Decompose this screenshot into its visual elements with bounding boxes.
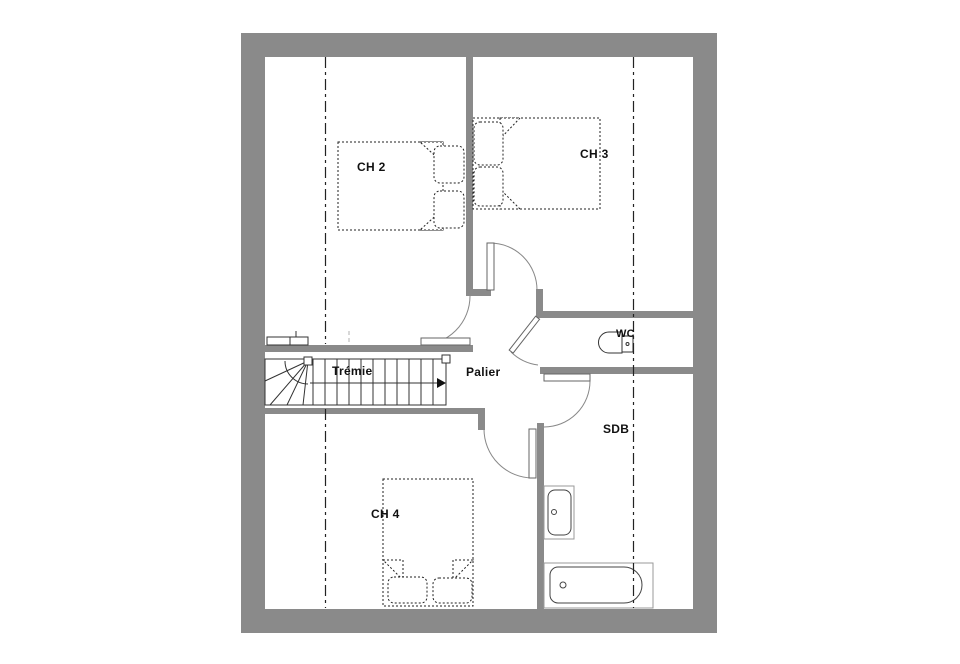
room-label-palier: Palier <box>466 365 501 379</box>
pillow <box>433 578 472 603</box>
door-leaf <box>544 374 590 381</box>
room-label-tremie: Trémie <box>332 364 373 378</box>
door-wc <box>509 316 539 365</box>
pillow <box>474 122 503 165</box>
door-sdb <box>544 374 590 427</box>
newel-start <box>304 357 312 365</box>
door-swing-arc <box>490 243 537 290</box>
door-leaf <box>421 338 470 345</box>
room-label-ch3: CH 3 <box>580 147 609 161</box>
room-label-wc: WC <box>616 328 635 340</box>
door-leaf <box>529 429 536 478</box>
door-swing-arc <box>544 381 590 427</box>
door-leaf <box>487 243 494 290</box>
newel-end <box>442 355 450 363</box>
door-ch3 <box>487 243 537 290</box>
upper-flight-strip <box>267 337 308 345</box>
pillow <box>434 191 464 228</box>
pillow <box>434 146 464 183</box>
room-label-sdb: SDB <box>603 422 629 436</box>
room-label-ch4: CH 4 <box>371 507 400 521</box>
room-label-ch2: CH 2 <box>357 160 386 174</box>
door-swing-arc <box>484 429 533 478</box>
pillow <box>388 577 427 603</box>
door-swing-arc <box>511 352 538 365</box>
floor-plan: CH 2 CH 3 CH 4 Trémie Palier WC SDB <box>0 0 960 664</box>
bathtub-icon <box>544 563 653 608</box>
pillow <box>474 167 503 206</box>
bed-ch4 <box>383 479 473 606</box>
sheet-fold <box>453 560 473 580</box>
plan-drawing <box>0 0 960 664</box>
bed-ch2 <box>338 142 464 230</box>
washbasin-icon <box>544 486 574 539</box>
door-leaf <box>509 316 539 353</box>
door-ch4 <box>484 429 536 478</box>
door-ch2 <box>421 296 470 345</box>
bed-ch3 <box>473 118 600 209</box>
